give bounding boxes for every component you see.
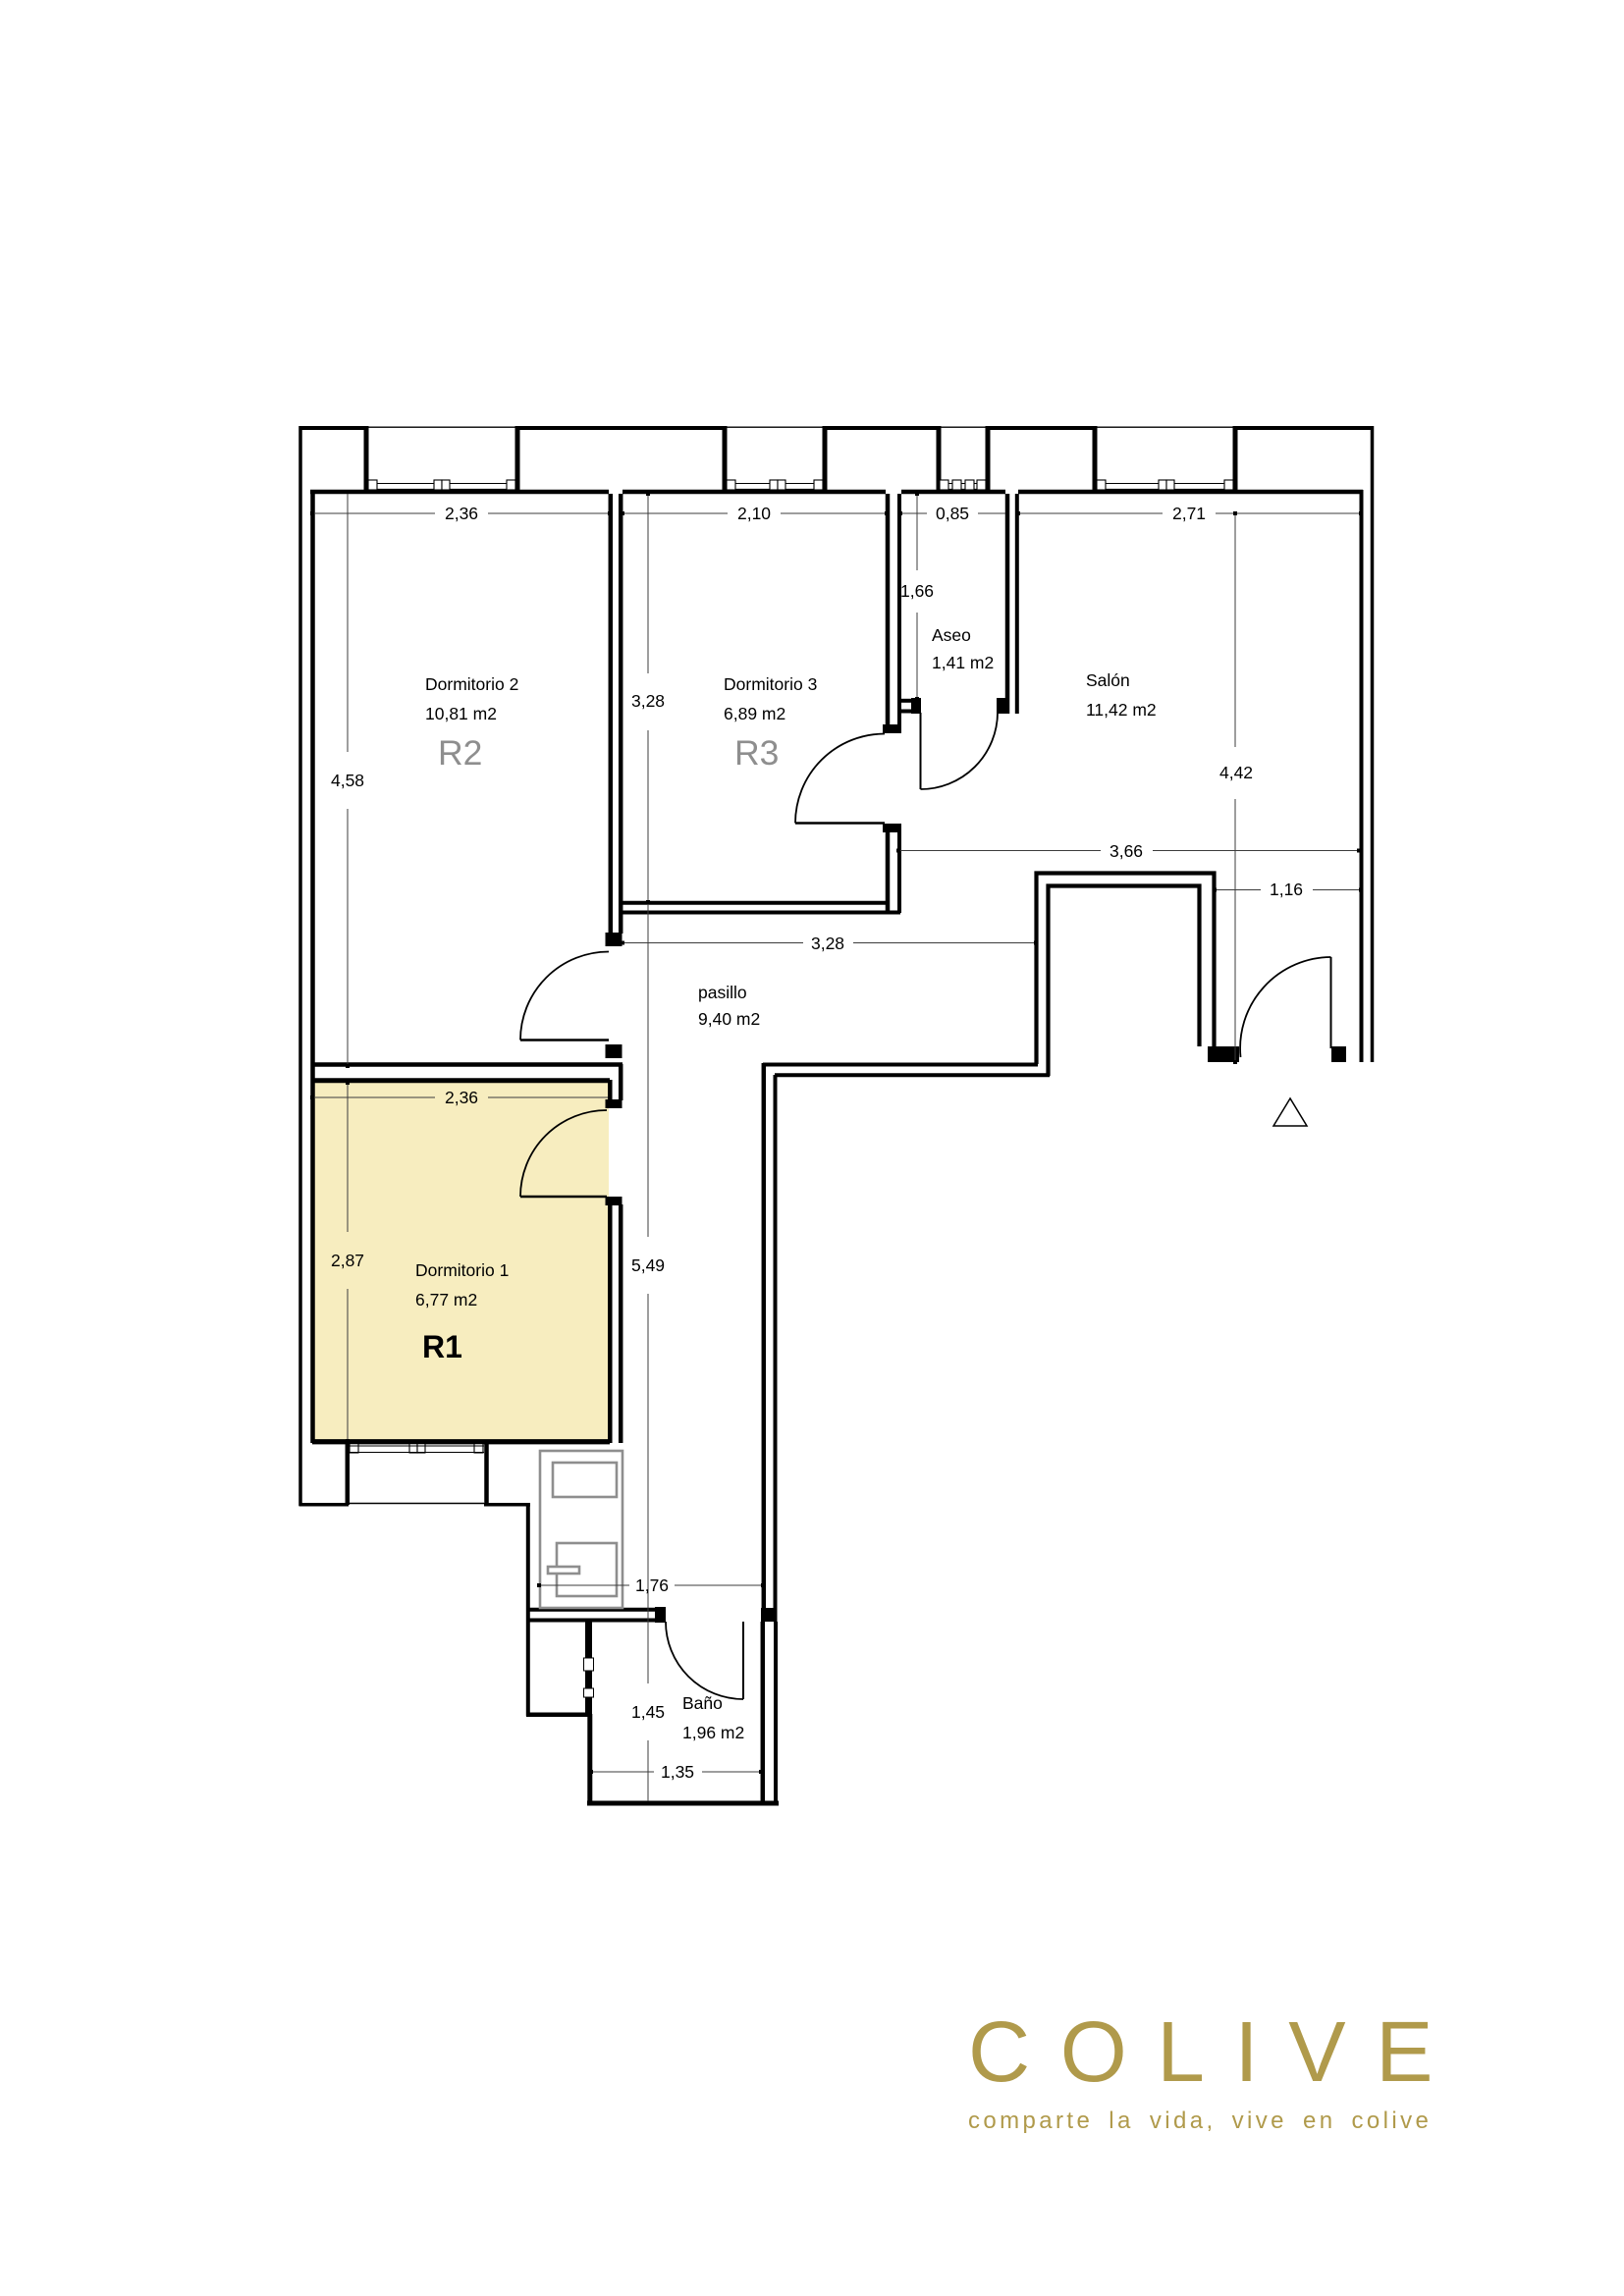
svg-text:pasillo: pasillo [698, 983, 747, 1002]
svg-text:comparte la vida, vive en coli: comparte la vida, vive en colive [968, 2108, 1432, 2134]
svg-text:Dormitorio 3: Dormitorio 3 [724, 674, 817, 694]
svg-text:2,36: 2,36 [445, 504, 478, 523]
svg-text:1,45: 1,45 [631, 1702, 665, 1722]
svg-text:Salón: Salón [1086, 670, 1130, 690]
svg-text:3,28: 3,28 [631, 691, 665, 711]
svg-text:R1: R1 [422, 1329, 462, 1364]
svg-text:R2: R2 [438, 733, 482, 773]
svg-text:11,42 m2: 11,42 m2 [1086, 700, 1157, 720]
svg-text:2,71: 2,71 [1172, 504, 1206, 523]
svg-text:10,81 m2: 10,81 m2 [425, 704, 497, 723]
svg-text:1,96 m2: 1,96 m2 [682, 1723, 744, 1742]
svg-text:6,77 m2: 6,77 m2 [415, 1290, 477, 1309]
svg-text:4,58: 4,58 [331, 771, 364, 790]
svg-text:Dormitorio 1: Dormitorio 1 [415, 1260, 509, 1280]
svg-text:0,85: 0,85 [936, 504, 969, 523]
svg-text:2,10: 2,10 [737, 504, 771, 523]
svg-text:3,28: 3,28 [811, 934, 844, 953]
svg-text:Aseo: Aseo [932, 625, 971, 645]
svg-text:5,49: 5,49 [631, 1255, 665, 1275]
svg-text:Dormitorio 2: Dormitorio 2 [425, 674, 518, 694]
svg-text:2,36: 2,36 [445, 1088, 478, 1107]
svg-text:1,35: 1,35 [661, 1762, 694, 1782]
svg-text:Baño: Baño [682, 1693, 723, 1713]
svg-text:4,42: 4,42 [1219, 763, 1253, 782]
svg-text:6,89 m2: 6,89 m2 [724, 704, 785, 723]
svg-text:9,40 m2: 9,40 m2 [698, 1009, 760, 1029]
svg-text:COLIVE: COLIVE [968, 2003, 1463, 2100]
svg-text:2,87: 2,87 [331, 1251, 364, 1270]
svg-text:1,76: 1,76 [635, 1575, 669, 1595]
svg-text:1,41 m2: 1,41 m2 [932, 653, 994, 672]
svg-text:R3: R3 [734, 733, 779, 773]
svg-text:3,66: 3,66 [1110, 841, 1143, 861]
svg-text:1,16: 1,16 [1270, 880, 1303, 899]
svg-text:1,66: 1,66 [900, 581, 934, 601]
